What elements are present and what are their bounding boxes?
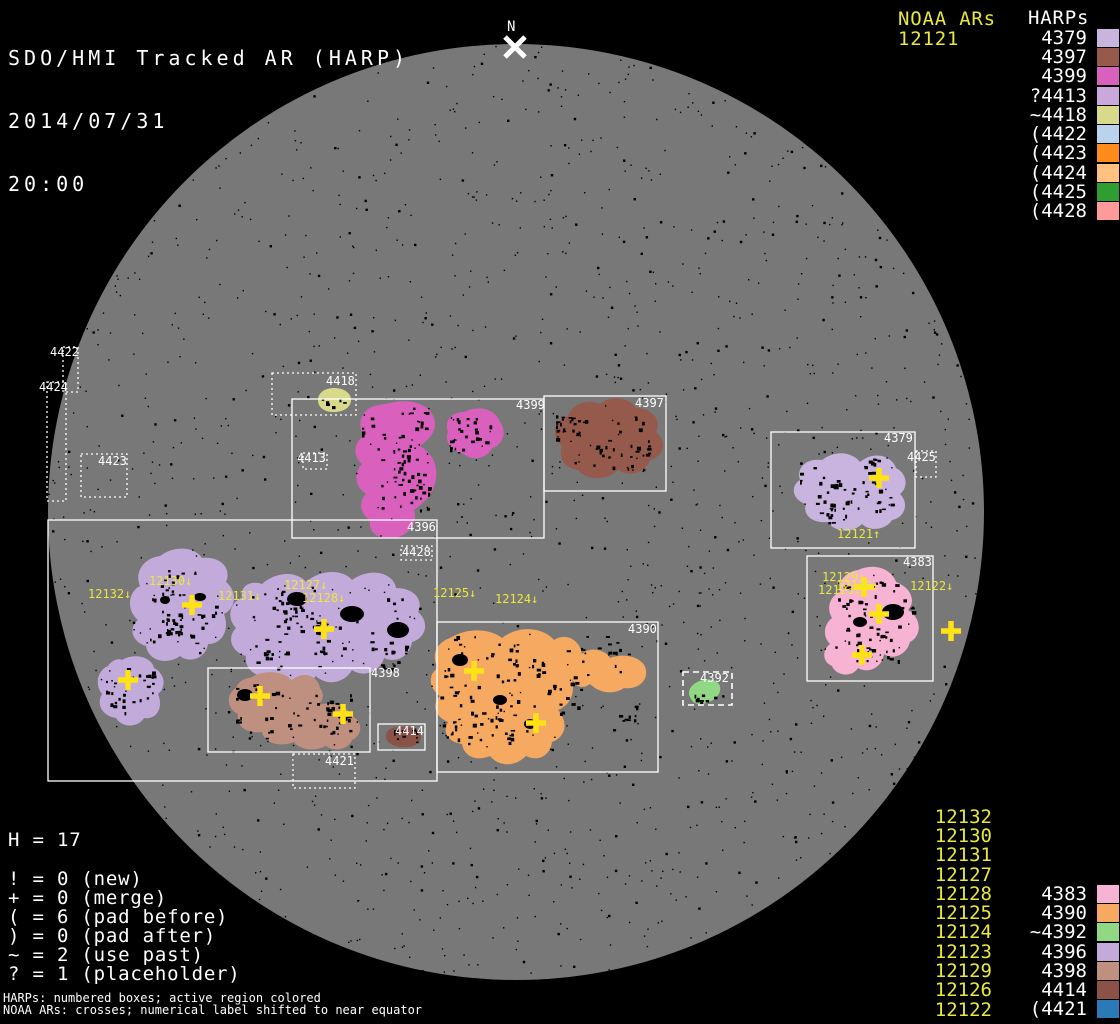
harp-box-label-4423: 4423 [98, 455, 127, 468]
harp-color-swatch-4414 [1097, 981, 1119, 999]
harps-heading: HARPs [1028, 8, 1089, 28]
harp-color-swatch-4383 [1097, 885, 1119, 903]
harp-color-swatch-4425 [1097, 183, 1119, 201]
harp-count: H = 17 [8, 830, 81, 850]
harp-box-label-4392: 4392 [700, 672, 729, 685]
harp-box-label-4422: 4422 [50, 346, 79, 359]
symbol-legend-line: ) = 0 (pad after) [8, 925, 241, 944]
harps-legend-east: 437943974399?4413~4418(4422(4423(4424(44… [1030, 28, 1119, 221]
harps-legend-row: (4422 [1030, 124, 1119, 143]
harps-legend-row: (4421 [1030, 1000, 1119, 1019]
harps-legend-row: 4399 [1030, 67, 1119, 86]
harp-color-swatch-4399 [1097, 67, 1119, 85]
plot-title: SDO/HMI Tracked AR (HARP) [8, 48, 409, 69]
noaa-number: 12128 [935, 884, 992, 903]
harp-color-swatch-4422 [1097, 125, 1119, 143]
harps-legend-row: ~4392 [1030, 923, 1119, 942]
harp-color-swatch-4428 [1097, 202, 1119, 220]
harp-box-label-4383: 4383 [903, 556, 932, 569]
noaa-ar-label: 12125↓ [433, 587, 476, 600]
noaa-number: 12126 [935, 981, 992, 1000]
noaa-number: 12127 [935, 865, 992, 884]
noaa-ar-label: 12121↑ [837, 528, 880, 541]
noaa-ar-label: 12130↓ [149, 575, 192, 588]
harp-box-label-4424: 4424 [39, 381, 68, 394]
plot-time: 20:00 [8, 174, 409, 195]
noaa-ar-label: 12132↓ [88, 588, 131, 601]
harp-box-label-4428: 4428 [402, 546, 431, 559]
harps-legend-row: ~4418 [1030, 105, 1119, 124]
symbol-legend-line: + = 0 (merge) [8, 887, 241, 906]
harp-color-swatch-4423 [1097, 144, 1119, 162]
harps-legend-row: (4428 [1030, 202, 1119, 221]
noaa-ars-current: 12121 [898, 29, 959, 49]
noaa-ar-label: 12123↓ [818, 584, 861, 597]
harp-box-label-4398: 4398 [371, 667, 400, 680]
symbol-legend: ! = 0 (new)+ = 0 (merge)( = 6 (pad befor… [8, 868, 241, 982]
harp-color-swatch-4421 [1097, 1000, 1119, 1018]
harps-legend-row: 4398 [1030, 961, 1119, 980]
harp-color-swatch-4424 [1097, 164, 1119, 182]
symbol-legend-line: ? = 1 (placeholder) [8, 963, 241, 982]
symbol-legend-line: ! = 0 (new) [8, 868, 241, 887]
noaa-ar-label: 12122↓ [910, 580, 953, 593]
harp-box-label-4425: 4425 [907, 451, 936, 464]
harp-box-label-4421: 4421 [325, 755, 354, 768]
harps-legend-west: 43834390~4392439643984414(4421 [1030, 884, 1119, 1019]
harp-box-label-4413: 4413 [297, 452, 326, 465]
harps-legend-row: 4383 [1030, 884, 1119, 903]
noaa-ars-heading: NOAA ARs [898, 9, 996, 29]
noaa-number: 12125 [935, 903, 992, 922]
noaa-ar-label: 12124↓ [495, 593, 538, 606]
noaa-number: 12129 [935, 961, 992, 980]
harp-box-label-4396: 4396 [407, 521, 436, 534]
noaa-number: 12131 [935, 846, 992, 865]
noaa-ar-label: 12131↓ [218, 590, 261, 603]
harp-box-label-4390: 4390 [628, 623, 657, 636]
harp-box-label-4379: 4379 [884, 432, 913, 445]
symbol-legend-line: ( = 6 (pad before) [8, 906, 241, 925]
noaa-ar-label: 12128↓ [302, 592, 345, 605]
harps-legend-row: 4390 [1030, 903, 1119, 922]
harps-legend-row: 4414 [1030, 980, 1119, 999]
harp-number: (4428 [1030, 200, 1087, 222]
harp-box-label-4414: 4414 [395, 725, 424, 738]
noaa-number: 12122 [935, 1000, 992, 1019]
harp-color-swatch-4396 [1097, 943, 1119, 961]
noaa-number: 12132 [935, 807, 992, 826]
harp-box-label-4397: 4397 [635, 397, 664, 410]
harps-legend-row: 4379 [1030, 28, 1119, 47]
harps-legend-row: (4423 [1030, 144, 1119, 163]
harp-color-swatch-4397 [1097, 48, 1119, 66]
harp-color-swatch-4413 [1097, 87, 1119, 105]
plot-header: SDO/HMI Tracked AR (HARP) 2014/07/31 20:… [8, 6, 409, 237]
harp-color-swatch-4392 [1097, 923, 1119, 941]
footnote-noaa: NOAA ARs: crosses; numerical label shift… [3, 1004, 422, 1016]
harp-box-label-4399: 4399 [516, 399, 545, 412]
harp-color-swatch-4418 [1097, 106, 1119, 124]
harp-number: (4421 [1030, 998, 1087, 1020]
noaa-number: 12123 [935, 942, 992, 961]
north-pole-label: N [507, 19, 515, 35]
harps-legend-row: (4424 [1030, 163, 1119, 182]
harp-color-swatch-4390 [1097, 904, 1119, 922]
noaa-legend-list: 1213212130121311212712128121251212412123… [935, 807, 992, 1019]
harp-color-swatch-4379 [1097, 29, 1119, 47]
harps-legend-row: ?4413 [1030, 86, 1119, 105]
harps-legend-row: 4397 [1030, 47, 1119, 66]
harp-color-swatch-4398 [1097, 962, 1119, 980]
noaa-number: 12130 [935, 826, 992, 845]
harp-box-label-4418: 4418 [326, 375, 355, 388]
harps-legend-row: 4396 [1030, 942, 1119, 961]
noaa-number: 12124 [935, 923, 992, 942]
plot-date: 2014/07/31 [8, 111, 409, 132]
harps-legend-row: (4425 [1030, 182, 1119, 201]
harp-plot: SDO/HMI Tracked AR (HARP) 2014/07/31 20:… [0, 0, 1120, 1024]
